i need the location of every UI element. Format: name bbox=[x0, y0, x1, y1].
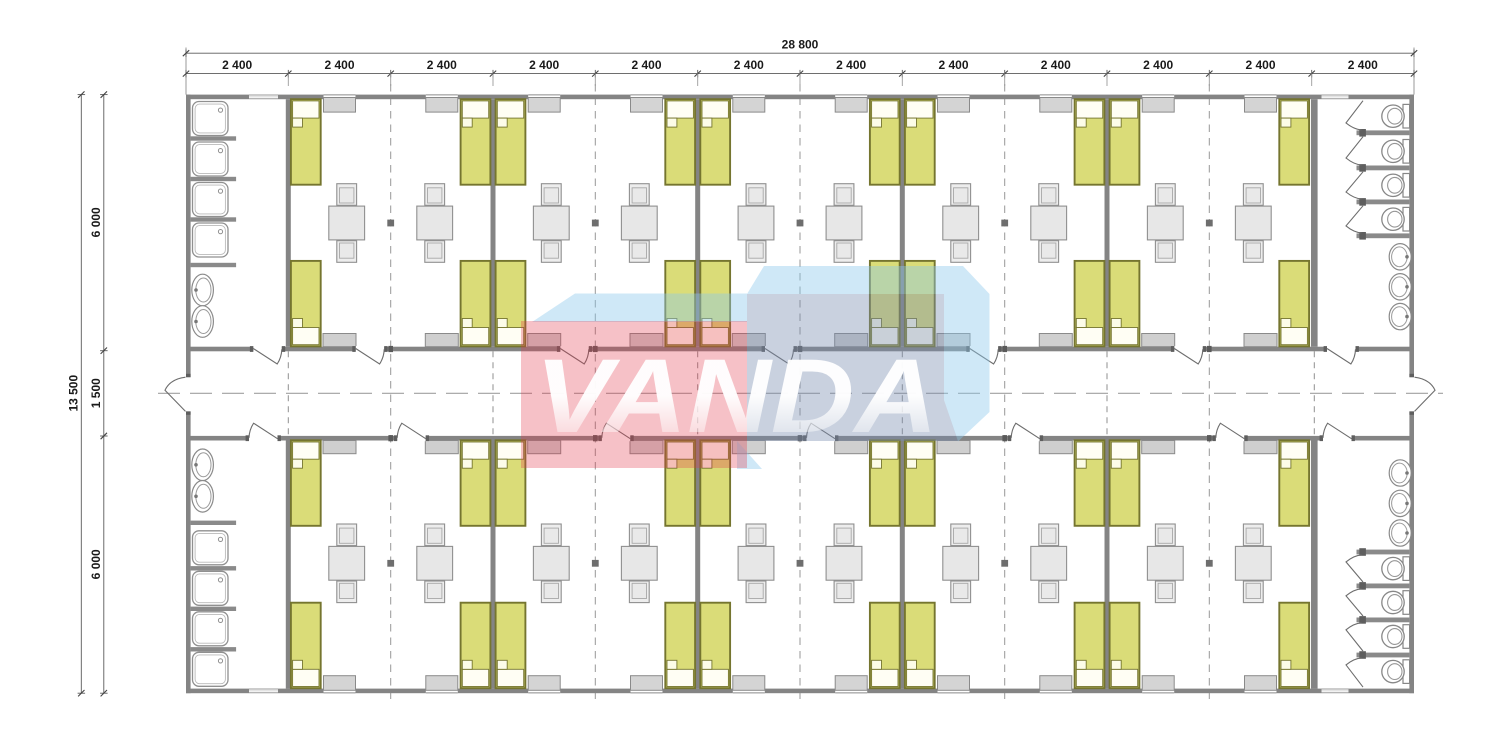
svg-text:2 400: 2 400 bbox=[1348, 58, 1378, 72]
svg-text:28 800: 28 800 bbox=[782, 38, 819, 52]
svg-text:2 400: 2 400 bbox=[1143, 58, 1173, 72]
svg-text:2 400: 2 400 bbox=[529, 58, 559, 72]
svg-text:2 400: 2 400 bbox=[938, 58, 968, 72]
svg-text:6 000: 6 000 bbox=[89, 549, 103, 579]
svg-text:6 000: 6 000 bbox=[89, 207, 103, 237]
svg-text:13 500: 13 500 bbox=[67, 375, 81, 412]
svg-text:2 400: 2 400 bbox=[427, 58, 457, 72]
svg-text:1 500: 1 500 bbox=[89, 378, 103, 408]
svg-text:VANDA: VANDA bbox=[535, 338, 938, 455]
svg-text:2 400: 2 400 bbox=[734, 58, 764, 72]
svg-text:2 400: 2 400 bbox=[324, 58, 354, 72]
svg-text:2 400: 2 400 bbox=[1041, 58, 1071, 72]
svg-text:2 400: 2 400 bbox=[222, 58, 252, 72]
svg-text:2 400: 2 400 bbox=[631, 58, 661, 72]
svg-text:2 400: 2 400 bbox=[836, 58, 866, 72]
svg-text:2 400: 2 400 bbox=[1245, 58, 1275, 72]
